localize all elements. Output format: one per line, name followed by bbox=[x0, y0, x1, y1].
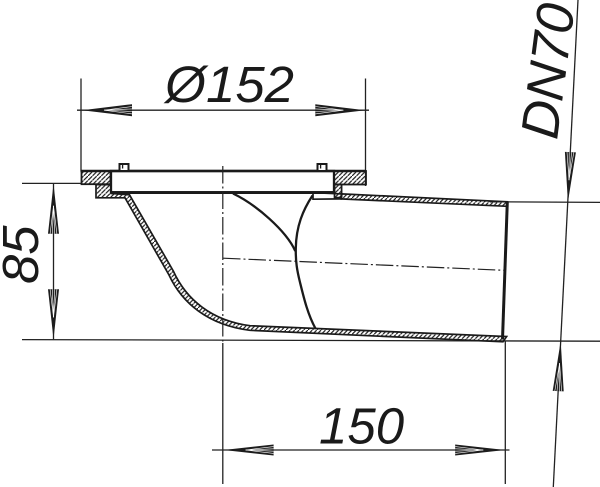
svg-text:Ø152: Ø152 bbox=[163, 56, 294, 113]
svg-text:85: 85 bbox=[0, 225, 49, 284]
svg-text:150: 150 bbox=[319, 398, 404, 455]
